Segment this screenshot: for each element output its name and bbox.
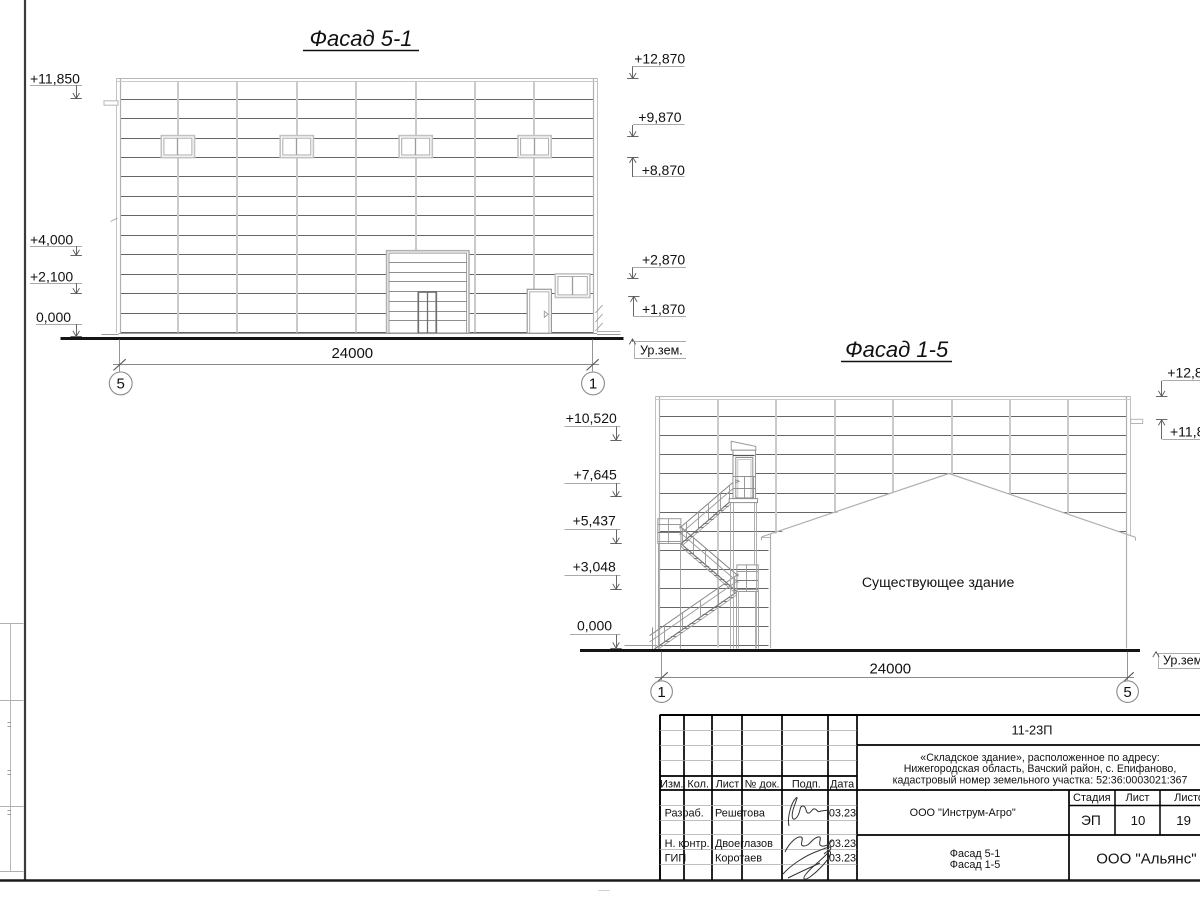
svg-text:Ур.зем.: Ур.зем.: [640, 344, 683, 358]
svg-text:Подп.: Подп.: [792, 778, 821, 790]
svg-text:+1,870: +1,870: [642, 301, 685, 317]
svg-text:+11,850: +11,850: [1170, 424, 1200, 440]
svg-text:+7,645: +7,645: [574, 467, 617, 483]
svg-text:Ур.зем.: Ур.зем.: [1163, 654, 1200, 668]
svg-text:Фасад 1-5: Фасад 1-5: [950, 859, 1001, 871]
svg-text:«Складское здание», расположен: «Складское здание», расположенное по адр…: [920, 752, 1159, 764]
svg-text:+2,100: +2,100: [30, 268, 73, 284]
svg-text:Лист: Лист: [716, 778, 740, 790]
svg-text:03.23: 03.23: [829, 808, 856, 820]
svg-text:Нижегородская область, Вачский: Нижегородская область, Вачский район, с.…: [904, 763, 1177, 775]
svg-text:5: 5: [1123, 684, 1131, 701]
svg-text:Решетова: Решетова: [715, 808, 766, 820]
svg-text:Фасад 5-1: Фасад 5-1: [309, 26, 412, 51]
svg-text:+2,870: +2,870: [642, 251, 685, 267]
svg-text:Фасад 1-5: Фасад 1-5: [845, 337, 949, 362]
svg-text:24000: 24000: [331, 345, 373, 362]
svg-text:ООО "Альянс": ООО "Альянс": [1096, 850, 1196, 867]
svg-text:10: 10: [1131, 813, 1146, 828]
svg-text:№ док.: № док.: [745, 778, 780, 790]
svg-text:1: 1: [589, 376, 597, 393]
svg-text:0,000: 0,000: [36, 309, 71, 325]
svg-text:Стадия: Стадия: [1073, 792, 1111, 804]
svg-text:Разраб.: Разраб.: [665, 808, 704, 820]
svg-text:+9,870: +9,870: [638, 109, 681, 125]
svg-text:ГИП: ГИП: [665, 853, 687, 865]
svg-text:Лист: Лист: [1126, 792, 1150, 804]
svg-text:Существующее здание: Существующее здание: [862, 575, 1015, 591]
svg-text:Н. контр.: Н. контр.: [665, 838, 710, 850]
svg-text:Дата: Дата: [830, 778, 855, 790]
svg-text:+4,000: +4,000: [30, 231, 73, 247]
svg-text:ООО "Инструм-Агро": ООО "Инструм-Агро": [910, 807, 1016, 819]
svg-text:03.23: 03.23: [829, 838, 856, 850]
svg-text:Листов: Листов: [1174, 792, 1200, 804]
svg-text:+8,870: +8,870: [642, 162, 685, 178]
svg-text:11-23П: 11-23П: [1012, 723, 1053, 738]
svg-text:5: 5: [117, 376, 125, 393]
svg-text:Коротаев: Коротаев: [715, 853, 762, 865]
svg-text:0,000: 0,000: [577, 618, 612, 634]
svg-text:24000: 24000: [869, 660, 911, 677]
svg-text:+12,870: +12,870: [1167, 365, 1200, 381]
svg-text:19: 19: [1176, 813, 1191, 828]
svg-text:Кол.: Кол.: [687, 778, 709, 790]
svg-text:+11,850: +11,850: [30, 70, 80, 86]
svg-text:Изм.: Изм.: [660, 778, 683, 790]
svg-text:+10,520: +10,520: [566, 410, 617, 426]
svg-text:+3,048: +3,048: [573, 558, 616, 574]
svg-text:1: 1: [657, 684, 665, 701]
svg-text:кадастровый номер земельного у: кадастровый номер земельного участка: 52…: [893, 774, 1188, 786]
svg-text:03.23: 03.23: [829, 853, 856, 865]
svg-text:+12,870: +12,870: [634, 50, 685, 66]
svg-text:+5,437: +5,437: [573, 513, 616, 529]
svg-text:ЭП: ЭП: [1081, 813, 1101, 828]
svg-text:Фасад 5-1: Фасад 5-1: [950, 848, 1001, 860]
svg-text:Двоеглазов: Двоеглазов: [715, 838, 773, 850]
